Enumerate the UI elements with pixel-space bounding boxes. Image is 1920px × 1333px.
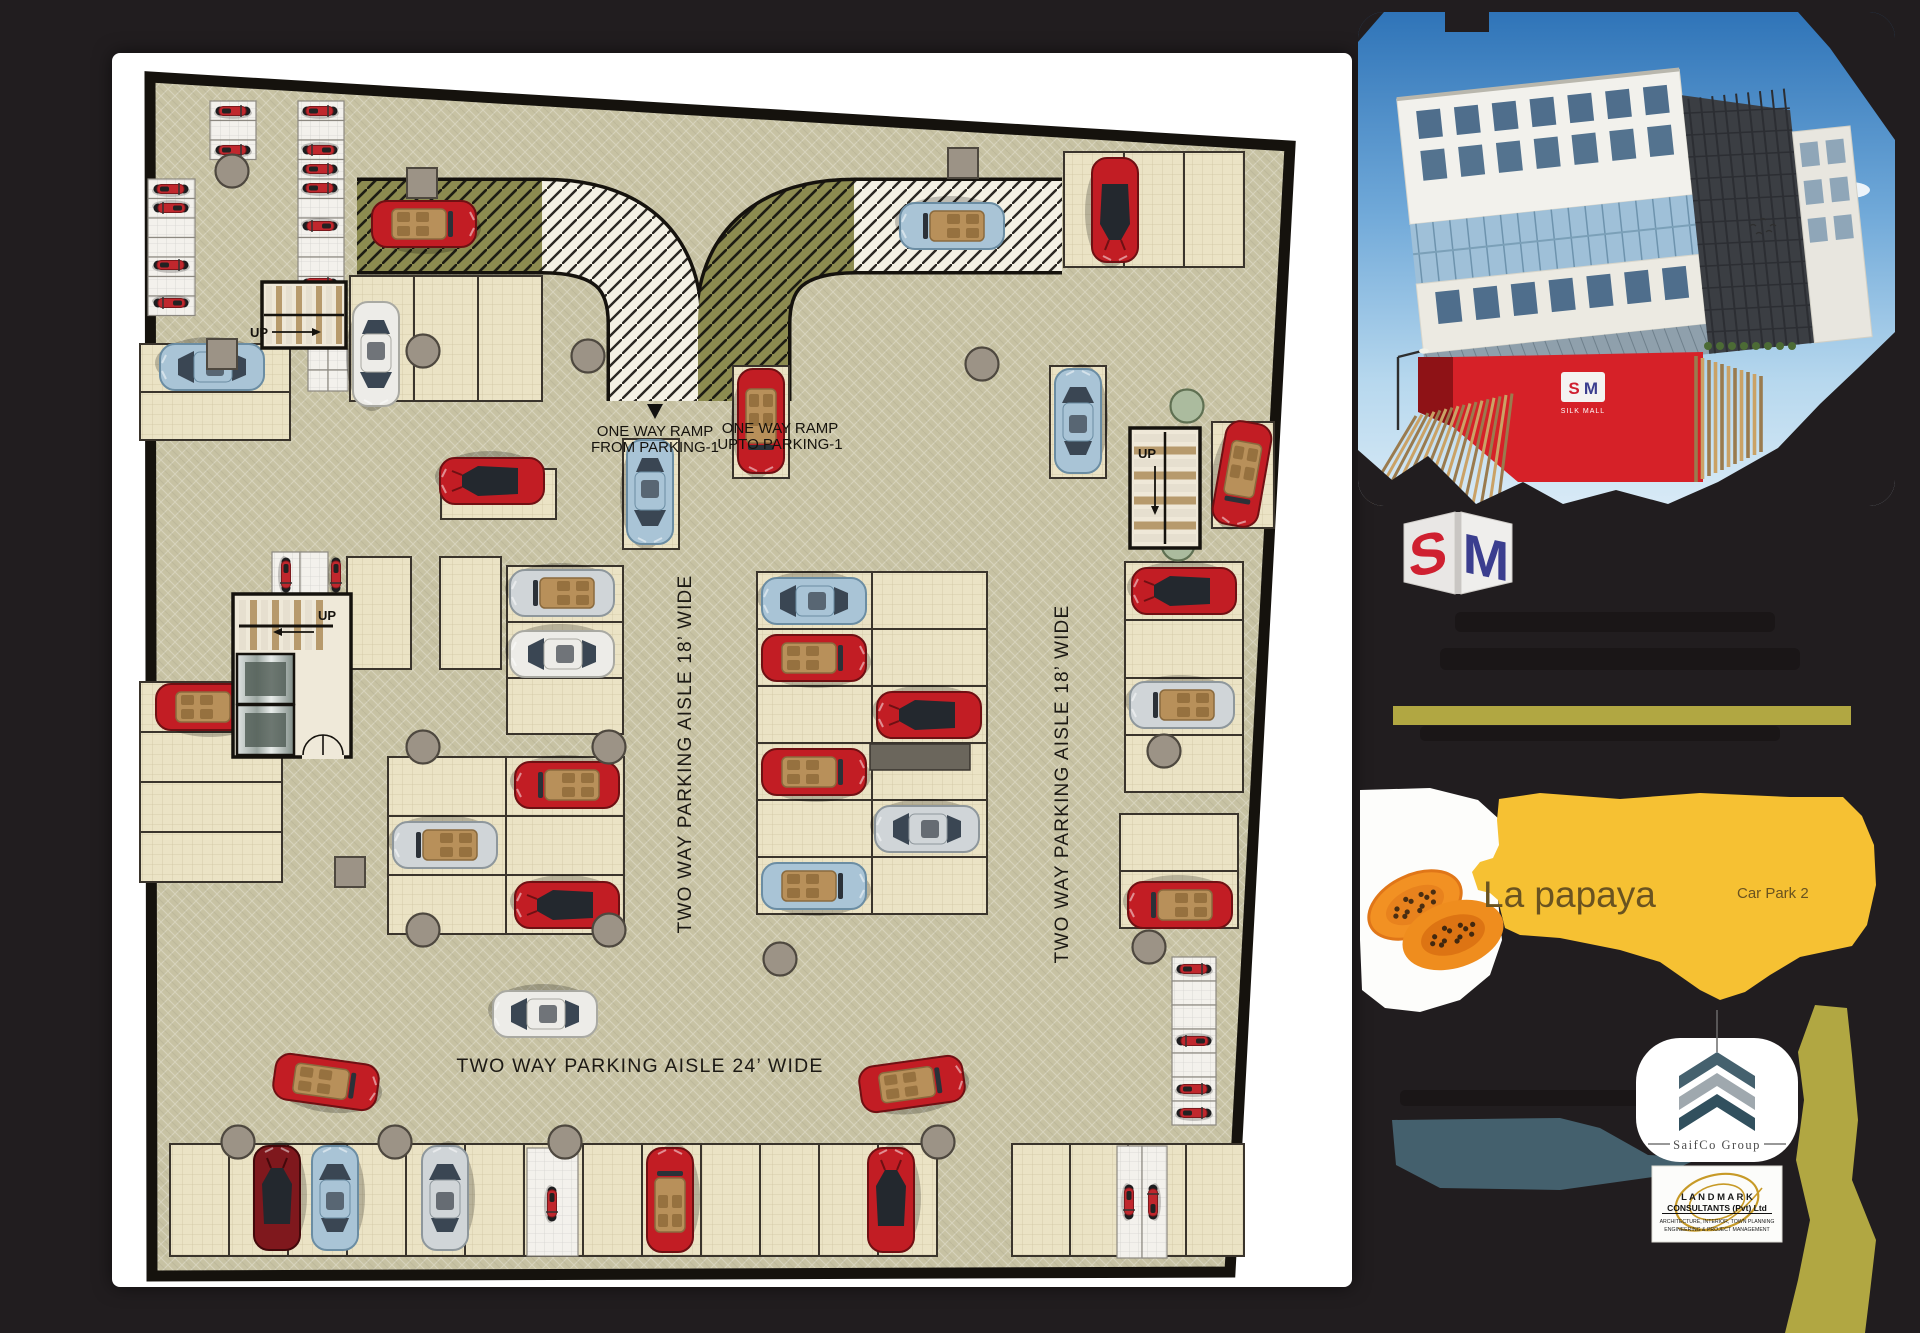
wood-slats-right xyxy=(1696,356,1761,482)
mini-sm-logo-s: S xyxy=(1568,379,1579,398)
motorcycle xyxy=(1147,1183,1161,1221)
project-title: La papaya xyxy=(1483,874,1656,915)
motorcycle xyxy=(301,218,339,232)
landmark-line4: ENGINEERING & PROJECT MANAGEMENT xyxy=(1664,1227,1770,1233)
floor-plan-drawing: UP UP xyxy=(112,53,1352,1287)
aisle-label-left: TWO WAY PARKING AISLE 18’ WIDE xyxy=(675,575,696,934)
car xyxy=(371,201,481,254)
parking-stall xyxy=(760,1144,819,1256)
column xyxy=(222,1126,255,1159)
column xyxy=(407,731,440,764)
up-label: UP xyxy=(1138,446,1156,461)
motorcycle xyxy=(214,105,252,119)
aisle-label-bottom: TWO WAY PARKING AISLE 24’ WIDE xyxy=(456,1055,823,1077)
parking-stall xyxy=(1120,814,1238,871)
car xyxy=(895,196,1005,249)
parking-stall xyxy=(757,686,872,743)
column xyxy=(207,339,237,369)
parking-stall xyxy=(1186,1144,1244,1256)
saifco-logo: SaifCo Group xyxy=(1636,1010,1798,1162)
ramp-from-label-line1: ONE WAY RAMP xyxy=(597,423,713,440)
parking-stall xyxy=(757,800,872,857)
mini-sm-logo-m: M xyxy=(1584,379,1598,398)
motorcycle-stall xyxy=(148,277,195,297)
parking-stall xyxy=(140,832,282,882)
sm-logo-s: S xyxy=(1409,518,1448,591)
column xyxy=(216,155,249,188)
parking-stall xyxy=(1125,735,1243,792)
car xyxy=(870,799,980,852)
car xyxy=(346,301,399,411)
motorcycle-stall xyxy=(148,238,195,258)
parking-stall xyxy=(1012,1144,1070,1256)
car xyxy=(312,1141,365,1251)
car xyxy=(872,685,982,738)
parking-stall xyxy=(388,875,506,934)
motorcycle-stall xyxy=(210,121,256,141)
silk-mall-label: SILK MALL xyxy=(1561,408,1605,415)
aisle-label-right: TWO WAY PARKING AISLE 18’ WIDE xyxy=(1052,605,1073,964)
stair-elevator-core: UP xyxy=(233,594,351,759)
ramp-upto-label-line1: ONE WAY RAMP xyxy=(722,420,838,437)
parking-stall xyxy=(388,757,506,816)
car xyxy=(1123,875,1233,928)
column xyxy=(948,148,978,178)
parking-stall xyxy=(347,557,411,669)
car xyxy=(488,984,598,1037)
parking-stall xyxy=(478,276,542,401)
sm-logo: S M xyxy=(1398,508,1518,603)
parking-stall xyxy=(701,1144,760,1256)
motorcycle-stall xyxy=(298,257,344,277)
car-park-label: Car Park 2 xyxy=(1737,885,1809,902)
up-label: UP xyxy=(250,325,268,340)
parking-stall xyxy=(140,392,290,440)
column xyxy=(1171,390,1204,423)
olive-ribbon xyxy=(1785,1005,1876,1333)
motorcycle-stall xyxy=(308,349,328,370)
car xyxy=(761,749,871,802)
motorcycle-stall xyxy=(328,370,348,391)
parking-stall xyxy=(1125,620,1243,678)
redacted-text-row xyxy=(1420,726,1780,741)
olive-divider-bar xyxy=(1393,706,1851,725)
sm-logo-m: M xyxy=(1463,521,1510,593)
parking-stall xyxy=(440,557,501,669)
motorcycle xyxy=(544,1185,558,1223)
column xyxy=(1148,735,1181,768)
building-structure xyxy=(1397,52,1872,383)
motorcycle xyxy=(301,105,339,119)
parking-stall xyxy=(506,816,624,875)
motorcycle-stall xyxy=(298,238,344,258)
ramp-from-label-line2: FROM PARKING-1 xyxy=(591,439,719,456)
column xyxy=(764,943,797,976)
landmark-line3: ARCHITECTURE, INTERIOR, TOWN PLANNING xyxy=(1660,1219,1775,1225)
landmark-line2: CONSULTANTS (Pvt) Ltd xyxy=(1667,1203,1767,1213)
car xyxy=(1127,561,1237,614)
motorcycle xyxy=(152,259,190,273)
column xyxy=(572,340,605,373)
car xyxy=(761,863,871,916)
motorcycle xyxy=(1175,1107,1213,1121)
parking-stall xyxy=(170,1144,229,1256)
motorcycle xyxy=(152,200,190,214)
stair-right: UP xyxy=(1130,428,1200,548)
parking-stall xyxy=(140,782,282,832)
redacted-text-row xyxy=(1440,648,1800,670)
motorcycle xyxy=(152,295,190,309)
motorcycle xyxy=(1121,1183,1135,1221)
motorcycle xyxy=(1175,963,1213,977)
motorcycle xyxy=(301,163,339,177)
ramp-upto-label-line2: UPTO PARKING-1 xyxy=(717,436,842,453)
car xyxy=(868,1143,921,1253)
column xyxy=(922,1126,955,1159)
motorcycle-stall xyxy=(1172,1053,1216,1077)
car xyxy=(757,571,867,624)
column xyxy=(407,335,440,368)
column xyxy=(335,857,365,887)
motorcycle-stall xyxy=(328,349,348,370)
car xyxy=(254,1141,307,1251)
car xyxy=(505,563,615,616)
column xyxy=(966,348,999,381)
car xyxy=(1085,157,1138,267)
shaded-strip xyxy=(870,744,970,770)
column xyxy=(407,168,437,198)
car xyxy=(422,1141,475,1251)
motorcycle xyxy=(301,182,339,196)
column xyxy=(379,1126,412,1159)
motorcycle-stall xyxy=(148,218,195,238)
motorcycle xyxy=(1175,1083,1213,1097)
sidebar-graphics: La papaya Car Park 2 SaifCo Group xyxy=(1360,700,1920,1333)
motorcycle-stall xyxy=(1172,1005,1216,1029)
column xyxy=(549,1126,582,1159)
motorcycle xyxy=(152,183,190,197)
car xyxy=(1125,675,1235,728)
motorcycle xyxy=(278,556,292,594)
landmark-line1: L A N D M A R K xyxy=(1681,1192,1753,1203)
floor-plan-sheet: UP UP xyxy=(112,53,1352,1287)
motorcycle-stall xyxy=(1172,981,1216,1005)
redacted-text-row xyxy=(1400,1090,1650,1106)
motorcycle-stall xyxy=(308,370,328,391)
parking-stall xyxy=(872,572,987,629)
building-render-image: S M SILK MALL xyxy=(1358,12,1895,506)
column xyxy=(1133,931,1166,964)
up-label: UP xyxy=(318,608,336,623)
car xyxy=(505,624,615,677)
motorcycle xyxy=(328,556,342,594)
landmark-logo: L A N D M A R K CONSULTANTS (Pvt) Ltd AR… xyxy=(1652,1166,1782,1242)
parking-stall xyxy=(1184,152,1244,267)
redacted-text-row xyxy=(1455,612,1775,632)
car xyxy=(1055,364,1108,474)
stair-top-left: UP xyxy=(250,282,346,348)
column xyxy=(407,914,440,947)
parking-stall xyxy=(583,1144,642,1256)
motorcycle-stall xyxy=(300,552,328,598)
car xyxy=(435,451,545,504)
parking-stall xyxy=(872,857,987,914)
page: UP UP xyxy=(0,0,1920,1333)
motorcycle xyxy=(1175,1033,1213,1047)
motorcycle-stall xyxy=(298,199,344,219)
car xyxy=(761,635,871,688)
car xyxy=(647,1143,700,1253)
parking-stall xyxy=(872,629,987,686)
column xyxy=(593,914,626,947)
saifco-name: SaifCo Group xyxy=(1673,1138,1761,1152)
car xyxy=(388,815,498,868)
column xyxy=(593,731,626,764)
motorcycle-stall xyxy=(298,121,344,141)
motorcycle xyxy=(301,142,339,156)
parking-stall xyxy=(507,678,623,734)
